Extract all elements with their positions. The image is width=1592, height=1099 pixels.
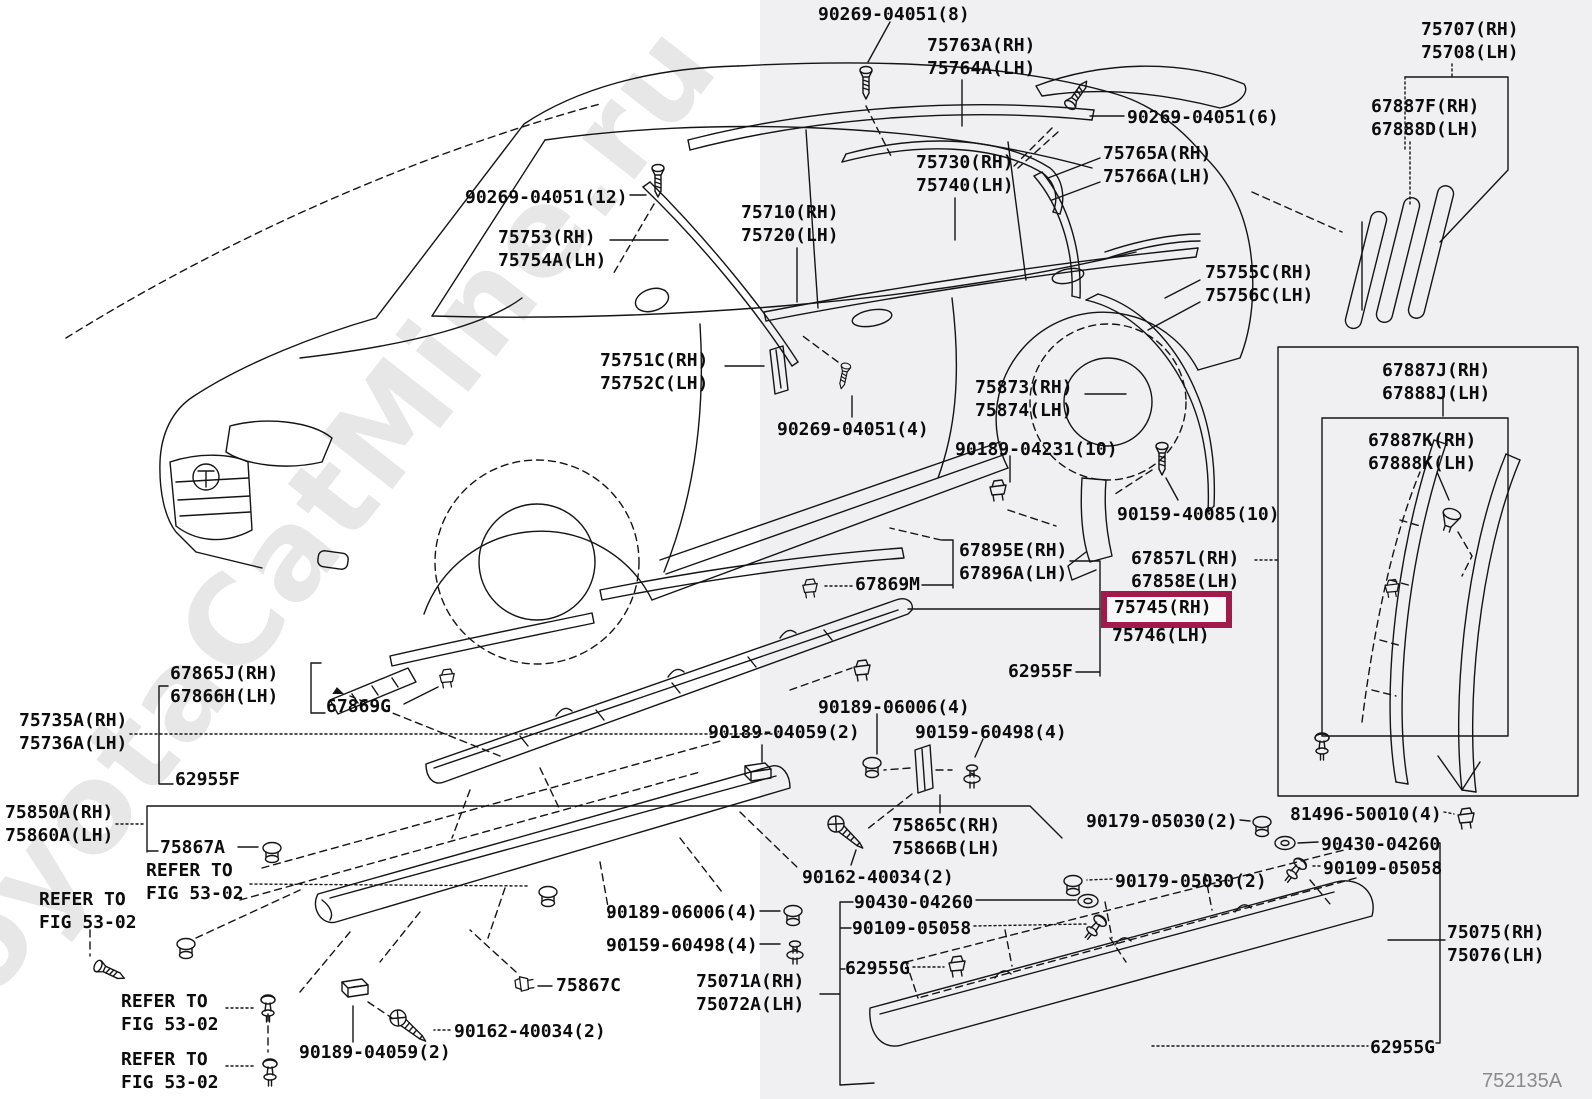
phillips-screw-icon — [825, 813, 868, 854]
part-label-90189-06006-4-top[interactable]: 90189-06006(4) — [818, 697, 970, 720]
part-label-90430-04260-right[interactable]: 90430-04260 — [1321, 834, 1440, 857]
part-label-90189-04231-10[interactable]: 90189-04231(10) — [955, 439, 1118, 462]
part-label-90159-40085-10[interactable]: 90159-40085(10) — [1117, 504, 1280, 527]
refer-note-3: REFER TO FIG 53-02 — [121, 991, 219, 1036]
pillar-cover-drawing — [1344, 184, 1455, 330]
part-label-81496-50010-4[interactable]: 81496-50010(4) — [1290, 804, 1442, 827]
part-label-75867A[interactable]: 75867A — [160, 837, 225, 860]
part-label-90269-04051-12[interactable]: 90269-04051(12) — [465, 187, 628, 210]
part-label-90159-60498-4-top[interactable]: 90159-60498(4) — [915, 722, 1067, 745]
rivet-icon — [964, 765, 980, 788]
part-label-90269-04051-6[interactable]: 90269-04051(6) — [1127, 107, 1279, 130]
diagram-root: { "meta": { "figure_code": "752135A", "w… — [0, 0, 1592, 1099]
part-label-62955F-right[interactable]: 62955F — [1008, 661, 1073, 684]
refer-note-1: REFER TO FIG 53-02 — [146, 860, 244, 905]
part-label-75735A[interactable]: 75735A(RH) 75736A(LH) — [19, 710, 127, 755]
part-label-90269-04051-8[interactable]: 90269-04051(8) — [818, 4, 970, 27]
part-label-90109-05058-left[interactable]: 90109-05058 — [852, 918, 971, 941]
screw-icon — [652, 165, 664, 198]
part-label-90159-60498-4-bottom[interactable]: 90159-60498(4) — [606, 935, 758, 958]
part-label-67887F[interactable]: 67887F(RH) 67888D(LH) — [1371, 96, 1479, 141]
part-label-75751C[interactable]: 75751C(RH) 75752C(LH) — [600, 350, 708, 395]
pin-clip-icon — [263, 1059, 277, 1086]
part-label-75865C[interactable]: 75865C(RH) 75866B(LH) — [892, 815, 1000, 860]
rivet-icon — [787, 941, 803, 964]
part-label-75071A[interactable]: 75071A(RH) 75072A(LH) — [696, 971, 804, 1016]
part-label-75763A[interactable]: 75763A(RH) 75764A(LH) — [927, 35, 1035, 80]
clip-icon — [515, 977, 534, 991]
clip-icon — [990, 480, 1006, 501]
screw-icon — [836, 362, 851, 389]
part-label-75850A[interactable]: 75850A(RH) 75860A(LH) — [5, 802, 113, 847]
part-label-75745-selected[interactable]: 75745(RH) — [1114, 597, 1212, 620]
clip-icon — [803, 579, 817, 598]
screw-icon — [92, 959, 127, 984]
part-label-90189-04059-2-bottom[interactable]: 90189-04059(2) — [299, 1042, 451, 1065]
part-label-67865J[interactable]: 67865J(RH) 67866H(LH) — [170, 663, 278, 708]
part-label-67887K[interactable]: 67887K(RH) 67888K(LH) — [1368, 430, 1476, 475]
refer-note-2: REFER TO FIG 53-02 — [39, 889, 137, 934]
grommet-icon — [1253, 817, 1271, 837]
part-label-67857L[interactable]: 67857L(RH) 67858E(LH) — [1131, 548, 1239, 593]
part-label-90109-05058-right[interactable]: 90109-05058 — [1323, 858, 1442, 881]
part-label-90179-05030-2-bottom[interactable]: 90179-05030(2) — [1115, 871, 1267, 894]
parts-diagram-canvas — [0, 0, 1592, 1099]
part-label-90162-40034-2-bottom[interactable]: 90162-40034(2) — [454, 1021, 606, 1044]
part-label-90430-04260-left[interactable]: 90430-04260 — [854, 892, 973, 915]
belt-strip-drawing — [390, 548, 904, 666]
refer-note-4: REFER TO FIG 53-02 — [121, 1049, 219, 1094]
part-label-75755C[interactable]: 75755C(RH) 75756C(LH) — [1205, 262, 1313, 307]
grommet-icon — [1064, 876, 1082, 896]
grommet-icon — [784, 906, 802, 926]
part-label-67869M[interactable]: 67869M — [855, 574, 920, 597]
part-label-90179-05030-2-top[interactable]: 90179-05030(2) — [1086, 811, 1238, 834]
part-label-75873[interactable]: 75873(RH) 75874(LH) — [975, 377, 1073, 422]
box-clip-icon — [342, 979, 368, 997]
part-label-90269-04051-4[interactable]: 90269-04051(4) — [777, 419, 929, 442]
grommet-icon — [177, 939, 195, 959]
grommet-icon — [539, 887, 557, 907]
part-label-75867C[interactable]: 75867C — [556, 975, 621, 998]
grommet-icon — [263, 843, 281, 863]
part-label-75730[interactable]: 75730(RH) 75740(LH) — [916, 152, 1014, 197]
part-label-75710[interactable]: 75710(RH) 75720(LH) — [741, 202, 839, 247]
part-label-67869G[interactable]: 67869G — [326, 696, 391, 719]
part-label-75746[interactable]: 75746(LH) — [1112, 625, 1210, 648]
part-label-90189-06006-4-bottom[interactable]: 90189-06006(4) — [606, 902, 758, 925]
leader-lines — [90, 22, 1508, 1085]
screw-icon — [1063, 78, 1091, 112]
part-label-62955G-left[interactable]: 62955G — [845, 958, 910, 981]
wheel-arch-flare-drawing — [1068, 294, 1214, 580]
part-label-62955F-left[interactable]: 62955F — [175, 769, 240, 792]
clip-icon — [854, 660, 870, 681]
screw-icon — [860, 67, 872, 100]
part-label-67895E[interactable]: 67895E(RH) 67896A(LH) — [959, 540, 1067, 585]
pin-clip-icon — [1081, 913, 1109, 943]
washer-icon — [1078, 895, 1098, 908]
part-label-90189-04059-2-top[interactable]: 90189-04059(2) — [708, 722, 860, 745]
clip-icon — [949, 956, 965, 977]
part-label-75707[interactable]: 75707(RH) 75708(LH) — [1421, 19, 1519, 64]
figure-code: 752135A — [1482, 1070, 1562, 1093]
part-label-62955G-bottom[interactable]: 62955G — [1370, 1037, 1435, 1060]
part-label-75765A[interactable]: 75765A(RH) 75766A(LH) — [1103, 143, 1211, 188]
part-label-75753[interactable]: 75753(RH) 75754A(LH) — [498, 227, 606, 272]
detail-inset-box — [1278, 347, 1578, 796]
part-label-67887J[interactable]: 67887J(RH) 67888J(LH) — [1382, 360, 1490, 405]
clip-icon — [1458, 808, 1474, 829]
washer-icon — [1275, 837, 1295, 850]
part-label-75075[interactable]: 75075(RH) 75076(LH) — [1447, 922, 1545, 967]
part-label-90162-40034-2-top[interactable]: 90162-40034(2) — [802, 867, 954, 890]
grommet-icon — [863, 758, 881, 778]
